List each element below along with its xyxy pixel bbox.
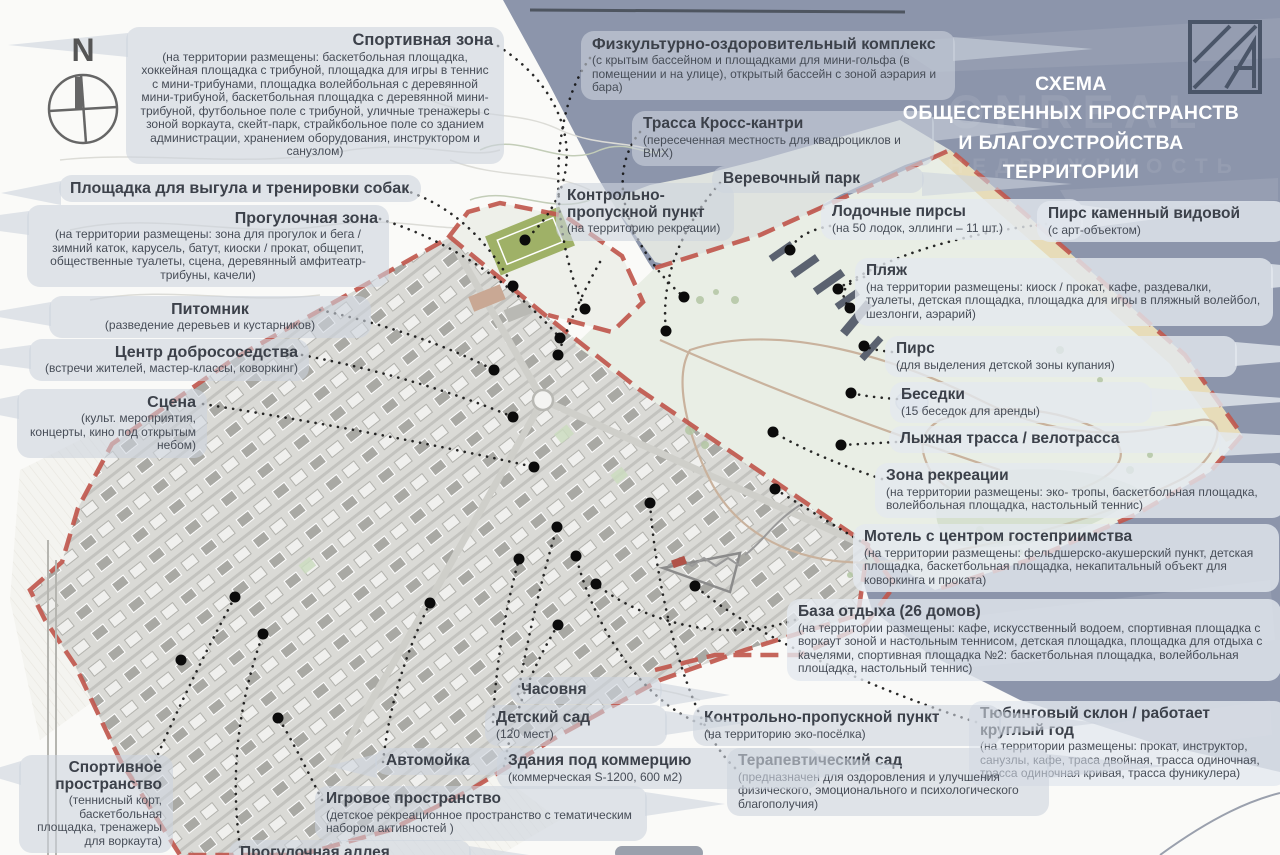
map-label-gazebos: Беседки(15 беседок для аренды): [901, 387, 1141, 418]
label-title: Контрольно-пропускной пункт: [567, 188, 723, 221]
map-label-motel: Мотель с центром гостеприимства(на терри…: [864, 529, 1268, 587]
brand-logo: [1188, 20, 1262, 99]
label-title: Здания под коммерцию: [508, 753, 808, 770]
logo-monogram-icon: [1188, 20, 1262, 94]
label-description: (на территории размещены: эко- тропы, ба…: [886, 486, 1274, 513]
label-title: База отдыха (26 домов): [798, 604, 1270, 621]
map-label-stone-pier: Пирс каменный видовой(с арт-объектом): [1048, 206, 1276, 237]
label-description: (на территорию рекреации): [567, 222, 723, 236]
label-title: Физкультурно-оздоровительный комплекс: [592, 36, 944, 53]
map-label-commerce: Здания под коммерцию(коммерческая S-1200…: [508, 753, 808, 784]
label-description: (культ. мероприятия, концерты, кино под …: [28, 412, 196, 453]
map-label-beach: Пляж(на территории размещены: киоск / пр…: [866, 263, 1262, 321]
map-label-alley: Прогулочная аллея: [240, 845, 460, 855]
label-bubble-tail: [1235, 342, 1280, 366]
map-label-kpp-recreation: Контрольно-пропускной пункт(на территори…: [567, 188, 723, 236]
compass-icon: [42, 66, 124, 148]
label-title: Спортивное пространство: [30, 760, 162, 793]
map-label-pier: Пирс(для выделения детской зоны купания): [896, 341, 1226, 372]
label-description: (на территории размещены: кафе, искусств…: [798, 622, 1270, 676]
label-description: (встречи жителей, мастер-классы, коворки…: [40, 362, 298, 376]
map-label-boat-piers: Лодочные пирсы(на 50 лодок, эллинги – 11…: [832, 204, 1072, 235]
label-description: (на территории размещены: фельдшерско-ак…: [864, 547, 1268, 588]
map-label-sport-space: Спортивное пространство(теннисный корт, …: [30, 760, 162, 848]
map-label-sport-zone: Спортивная зона(на территории размещены:…: [137, 32, 493, 159]
label-title: Беседки: [901, 387, 1141, 404]
map-label-rest-base: База отдыха (26 домов)(на территории раз…: [798, 604, 1270, 676]
compass-n-label: N: [38, 34, 128, 66]
label-title: Лыжная трасса / велотрасса: [900, 431, 1210, 448]
label-description: (с арт-объектом): [1048, 224, 1276, 238]
map-label-walking-zone: Прогулочная зона(на территории размещены…: [38, 210, 378, 282]
label-title: Зона рекреации: [886, 468, 1274, 485]
map-label-neighbor-center: Центр добрососедства(встречи жителей, ма…: [40, 344, 298, 376]
label-title: Спортивная зона: [137, 32, 493, 50]
label-title: Сцена: [28, 394, 196, 411]
label-title: Площадка для выгула и тренировки собак: [70, 180, 410, 197]
label-bubble-tail: [0, 345, 31, 369]
label-title: Пирс: [896, 341, 1226, 358]
label-title: Часовня: [521, 682, 651, 699]
label-title: Мотель с центром гостеприимства: [864, 529, 1268, 546]
label-description: (теннисный корт, баскетбольная площадка,…: [30, 794, 162, 848]
label-title: Питомник: [60, 301, 360, 318]
label-description: (разведение деревьев и кустарников): [60, 319, 360, 333]
label-description: (для выделения детской зоны купания): [896, 359, 1226, 373]
label-bubble-tail: [1219, 432, 1280, 456]
label-description: (на территории размещены: баскетбольная …: [137, 51, 493, 159]
label-description: (на территорию эко-посёлка): [704, 728, 990, 742]
map-label-kpp-eco: Контрольно-пропускной пункт(на территори…: [704, 710, 990, 741]
label-title: Прогулочная аллея: [240, 845, 460, 855]
map-label-nursery: Питомник(разведение деревьев и кустарник…: [60, 301, 360, 333]
map-label-ski-track: Лыжная трасса / велотрасса: [900, 431, 1210, 448]
label-title: Пирс каменный видовой: [1048, 206, 1276, 223]
label-title: Лодочные пирсы: [832, 204, 1072, 221]
label-title: Детский сад: [496, 710, 656, 727]
compass-north-indicator: N: [38, 34, 128, 153]
label-description: (детское рекреационное пространство с те…: [326, 809, 636, 836]
label-bubble-tail: [0, 211, 29, 235]
scheme-page: ONREAL НЕДВИЖИМОСТЬ СХЕМА ОБЩЕСТВЕННЫХ П…: [0, 0, 1280, 855]
label-title: Центр добрососедства: [40, 344, 298, 361]
map-label-kindergarten: Детский сад(120 мест): [496, 710, 656, 741]
label-title: Пляж: [866, 263, 1262, 280]
label-title: Игровое пространство: [326, 791, 636, 808]
map-label-recreation-zone: Зона рекреации(на территории размещены: …: [886, 468, 1274, 513]
label-description: (15 беседок для аренды): [901, 405, 1141, 419]
label-title: Прогулочная зона: [38, 210, 378, 227]
label-description: (на территории размещены: зона для прогу…: [38, 228, 378, 282]
label-description: (на территории размещены: киоск / прокат…: [866, 281, 1262, 322]
label-description: (коммерческая S-1200, 600 м2): [508, 771, 808, 785]
label-description: (на 50 лодок, эллинги – 11 шт.): [832, 222, 1072, 236]
map-label-stage: Сцена(культ. мероприятия, концерты, кино…: [28, 394, 196, 453]
map-label-chapel: Часовня: [521, 682, 651, 699]
map-label-dog-area: Площадка для выгула и тренировки собак: [70, 180, 410, 197]
map-label-play-space: Игровое пространство(детское рекреационн…: [326, 791, 636, 836]
label-title: Контрольно-пропускной пункт: [704, 710, 990, 727]
label-description: (120 мест): [496, 728, 656, 742]
